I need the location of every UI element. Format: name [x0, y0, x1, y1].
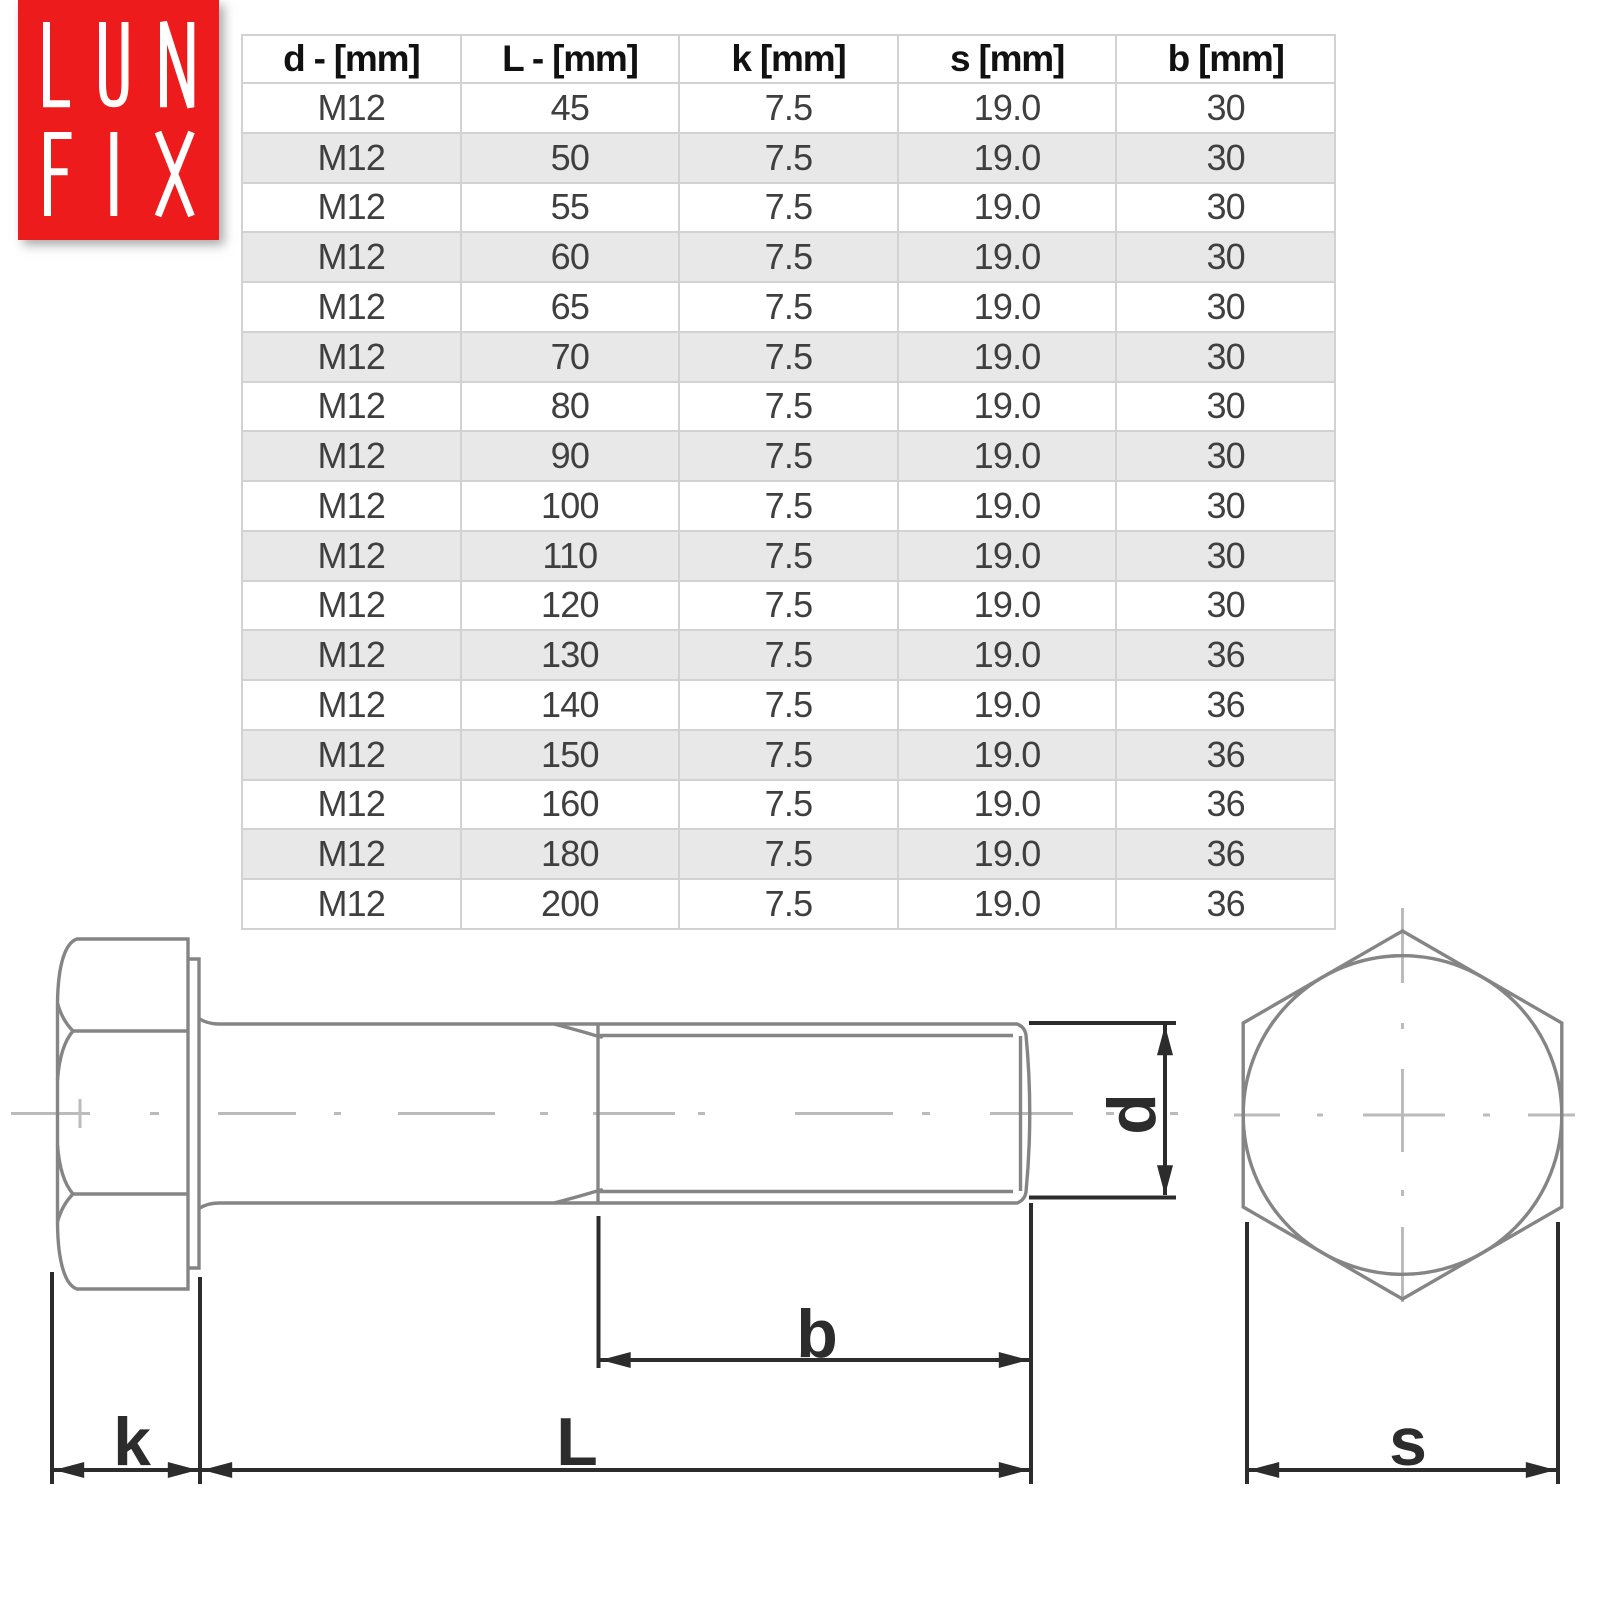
svg-text:d: d [1094, 1093, 1170, 1135]
svg-text:k: k [113, 1404, 151, 1480]
svg-text:L: L [556, 1404, 598, 1480]
svg-text:s: s [1389, 1404, 1427, 1480]
svg-text:b: b [796, 1296, 838, 1372]
